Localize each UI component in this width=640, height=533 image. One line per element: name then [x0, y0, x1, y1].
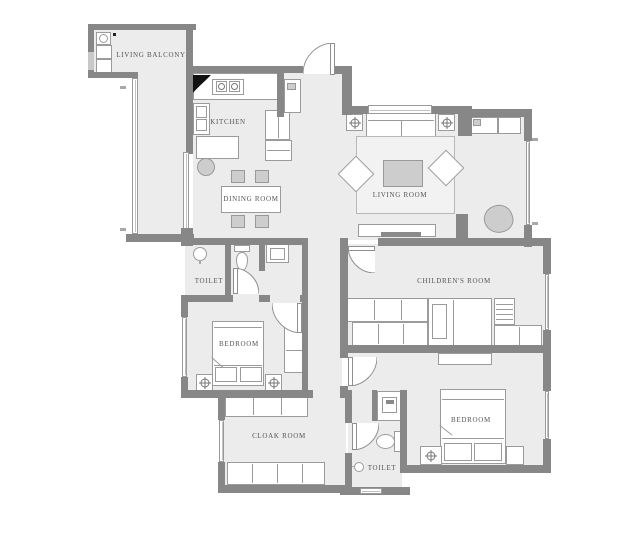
sill-tick	[532, 222, 538, 225]
window-segment	[88, 52, 94, 70]
wall	[300, 295, 308, 302]
kitchen-corner-hood	[191, 75, 212, 96]
room-label-bedroom-right: BEDROOM	[451, 416, 491, 424]
wall	[340, 244, 348, 358]
wall	[186, 66, 303, 73]
wc-tank	[234, 245, 250, 252]
dining-chair-1	[231, 170, 245, 183]
wall	[470, 109, 532, 117]
shower-fixture	[386, 400, 394, 404]
room-label-cloak-room: CLOAK ROOM	[252, 432, 306, 440]
burner-left-ring	[218, 83, 225, 90]
childrens-wardrobe-row-1	[346, 298, 428, 322]
pillow	[240, 367, 262, 382]
hallway-floor	[302, 73, 342, 397]
wall	[277, 73, 284, 117]
kitchen-sink-bowl-2	[196, 119, 207, 131]
kitchen-sink-bowl-1	[196, 106, 207, 118]
cloak-wardrobe-top	[225, 396, 308, 417]
sill-tick	[532, 138, 538, 141]
dining-chair-3	[231, 215, 245, 228]
entry-console-mark	[473, 119, 481, 126]
window	[368, 105, 432, 114]
basin-stem	[199, 260, 201, 264]
burner-right-ring	[231, 83, 238, 90]
window	[183, 152, 189, 232]
dining-chair-2	[255, 170, 269, 183]
sill-tick	[120, 228, 126, 231]
bedroom-right-door	[348, 357, 377, 386]
wall-partition	[259, 238, 265, 271]
wall	[543, 238, 551, 274]
window	[132, 78, 138, 234]
floor-plan: LIVING BALCONY KITCHEN DINING ROOM LIVIN…	[0, 0, 640, 533]
room-label-dining-room: DINING ROOM	[223, 195, 278, 203]
bunk-ladder	[494, 298, 515, 325]
washbasin-round	[354, 462, 364, 472]
sill-tick	[120, 86, 126, 89]
wall	[340, 238, 348, 246]
lamp-icon	[349, 117, 361, 129]
wall	[181, 295, 233, 302]
wall	[302, 302, 308, 392]
kitchen-cabinet-low	[265, 140, 292, 161]
wall	[340, 345, 551, 353]
entry-door	[303, 43, 335, 75]
wall	[345, 453, 352, 493]
toilet-lower-door	[352, 423, 379, 450]
lamp-icon	[199, 377, 211, 389]
room-label-living-balcony: LIVING BALCONY	[116, 51, 186, 59]
bedroom-left-door	[272, 303, 302, 333]
childrens-wardrobe-row-2	[352, 322, 428, 346]
wall	[181, 238, 308, 245]
wall	[218, 390, 225, 420]
pillow	[215, 367, 237, 382]
washbasin-square-bowl	[270, 248, 285, 260]
wall-stub	[372, 390, 377, 421]
kitchen-peninsula	[196, 136, 239, 159]
wall	[524, 109, 532, 141]
washing-machine-drum	[99, 34, 108, 43]
balcony-small-box	[113, 33, 116, 36]
entry-console-2	[498, 117, 521, 134]
wall	[259, 295, 270, 302]
room-label-bedroom-left: BEDROOM	[219, 340, 259, 348]
window	[545, 274, 549, 330]
window	[545, 391, 549, 439]
window	[360, 488, 382, 494]
cloak-wardrobe-bottom	[227, 462, 325, 485]
room-label-toilet-lower: TOILET	[368, 464, 397, 472]
lamp-icon	[268, 377, 280, 389]
balcony-corridor-floor	[138, 30, 186, 236]
wall	[181, 390, 313, 398]
room-label-toilet-upper: TOILET	[195, 277, 224, 285]
tv	[381, 232, 421, 237]
balcony-cabinet-2	[96, 59, 112, 73]
toilet-upper-door	[233, 268, 259, 294]
wall	[88, 24, 196, 30]
room-label-kitchen: KITCHEN	[210, 118, 246, 126]
wall	[345, 390, 352, 423]
window	[182, 317, 187, 377]
lamp-icon	[425, 450, 437, 462]
wall	[400, 390, 407, 473]
wall	[302, 238, 308, 302]
bedside-bench	[506, 446, 524, 465]
balcony-cabinet-1	[96, 45, 112, 59]
wall	[88, 72, 138, 78]
wall	[543, 353, 551, 391]
wall	[186, 24, 193, 154]
window	[219, 420, 224, 462]
window	[526, 141, 530, 225]
lamp-icon	[441, 117, 453, 129]
pillow	[432, 304, 447, 339]
wall	[400, 465, 551, 473]
washbasin-round	[193, 247, 207, 261]
wall	[218, 485, 345, 493]
entry-shoe-cabinet-mark	[287, 83, 296, 90]
dining-stool	[197, 158, 215, 176]
dresser	[438, 353, 492, 365]
dining-chair-4	[255, 215, 269, 228]
pillow	[444, 443, 472, 461]
room-label-childrens-room: CHILDREN'S ROOM	[417, 277, 491, 285]
wall	[181, 295, 188, 317]
wall-partition	[225, 245, 231, 296]
room-label-living-room: LIVING ROOM	[373, 191, 428, 199]
childrens-cabinet	[494, 325, 542, 347]
childrens-room-door	[348, 246, 375, 273]
coffee-table	[383, 160, 423, 187]
wall-pillar	[456, 214, 468, 240]
pillow	[474, 443, 502, 461]
